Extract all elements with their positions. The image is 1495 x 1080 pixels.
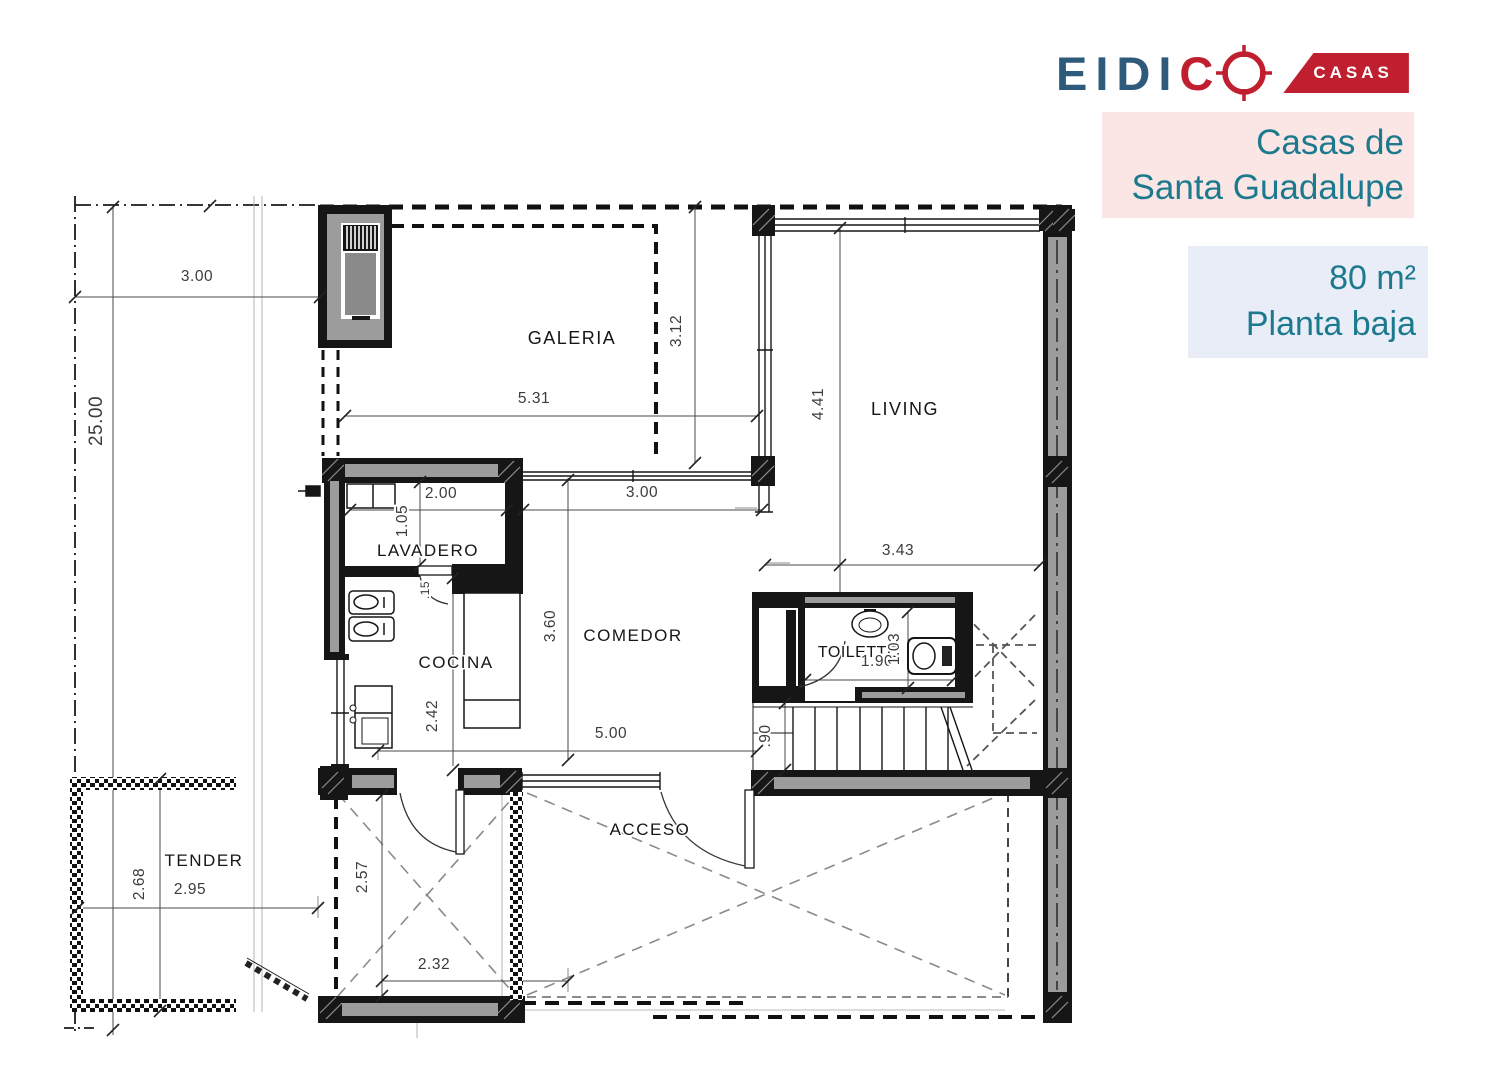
room-label-lavadero: LAVADERO (377, 541, 479, 560)
parrilla (318, 205, 392, 348)
carport-divider-fence (510, 792, 523, 1000)
crosshair-icon (1215, 44, 1273, 102)
dim-label: 2.42 (424, 700, 441, 732)
project-title-box: Casas de Santa Guadalupe (1102, 112, 1414, 218)
logo: EIDI C CASAS (1056, 44, 1409, 102)
dim-label: 1.05 (394, 505, 411, 537)
room-label-acceso: ACCESO (610, 820, 691, 839)
dim-label: 4.41 (810, 388, 827, 420)
dim-label: 5.00 (595, 725, 627, 742)
dim-label: 2.32 (418, 956, 450, 973)
dim-label: 3.60 (542, 610, 559, 642)
project-title-line1: Casas de (1102, 120, 1404, 166)
room-label-living: LIVING (871, 399, 939, 419)
dim-label: 3.12 (668, 315, 685, 347)
gate (246, 963, 307, 999)
logo-text: EIDI (1056, 50, 1179, 97)
room-label-cocina: COCINA (418, 653, 493, 672)
dim-label: 2.57 (354, 861, 371, 893)
dim-label: 5.31 (518, 390, 550, 407)
spec-box: 80 m² Planta baja (1188, 246, 1428, 358)
room-label-comedor: COMEDOR (583, 626, 682, 645)
dim-label: 2.00 (425, 485, 457, 502)
staircase (753, 702, 973, 770)
area-value: 80 m² (1188, 256, 1416, 302)
floor-name: Planta baja (1188, 302, 1416, 348)
stair-void-dashed (963, 615, 1037, 766)
project-title-line2: Santa Guadalupe (1102, 165, 1404, 211)
room-label-galeria: GALERIA (528, 328, 617, 348)
dim-label: 3.00 (626, 484, 658, 501)
dim-label: 25.00 (86, 396, 107, 446)
room-label-tender: TENDER (165, 851, 244, 870)
dim-label: .90 (757, 724, 774, 747)
dim-label: 3.43 (882, 542, 914, 559)
dim-label: 1.03 (886, 633, 903, 665)
dim-label: 2.68 (131, 868, 148, 900)
logo-badge: CASAS (1283, 53, 1409, 93)
logo-text-accent: C (1179, 50, 1213, 97)
page: { "brand": { "logo_text_primary": "EIDI"… (0, 0, 1495, 1080)
dim-label: 3.00 (181, 268, 213, 285)
dim-label: .15 (418, 581, 432, 599)
dim-label: 2.95 (174, 881, 206, 898)
